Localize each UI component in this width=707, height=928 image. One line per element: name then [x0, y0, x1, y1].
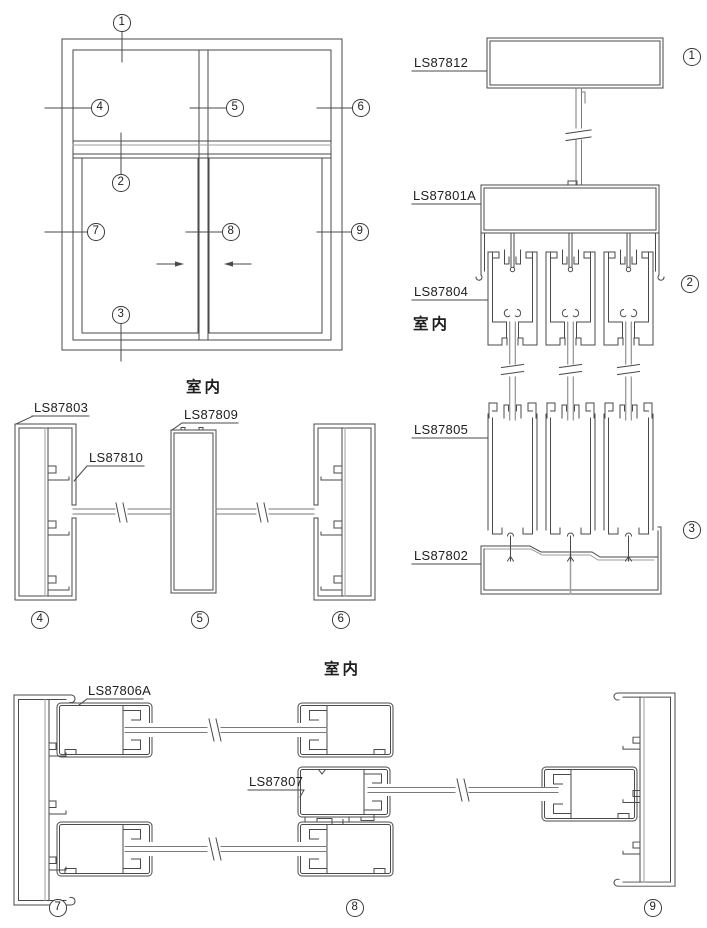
glass-lines-bottom — [125, 719, 558, 860]
elevation-linework — [45, 32, 352, 362]
section-marker-8-detail: 8 — [346, 899, 364, 917]
section-marker-8-elevation: 8 — [222, 223, 240, 241]
part-label-ls87802: LS87802 — [414, 549, 468, 563]
section-marker-6-elevation: 6 — [352, 99, 370, 117]
section-marker-4-elevation: 4 — [91, 99, 109, 117]
section-marker-1-detail: 1 — [683, 48, 701, 66]
profile-jamb-right-section9 — [614, 693, 675, 886]
profile-jamb-right-section6 — [314, 424, 375, 600]
section-marker-3-elevation: 3 — [112, 306, 130, 324]
part-label-ls87804: LS87804 — [414, 285, 468, 299]
profile-ls87809-mullion — [171, 423, 238, 593]
part-label-ls87801a: LS87801A — [413, 189, 476, 203]
part-label-ls87809: LS87809 — [184, 408, 238, 422]
interior-label-right-section: 室内 — [413, 316, 450, 333]
section-marker-6-detail: 6 — [332, 611, 350, 629]
interior-label-mid-section: 室内 — [186, 379, 223, 396]
part-label-ls87812: LS87812 — [414, 56, 468, 70]
section-marker-4-detail: 4 — [31, 611, 49, 629]
section-marker-9-elevation: 9 — [351, 223, 369, 241]
part-label-ls87810: LS87810 — [89, 451, 143, 465]
section-marker-7-elevation: 7 — [87, 223, 105, 241]
part-label-ls87803: LS87803 — [34, 401, 88, 415]
section-marker-3-detail: 3 — [683, 521, 701, 539]
section-marker-5-elevation: 5 — [226, 99, 244, 117]
section-marker-9-detail: 9 — [644, 899, 662, 917]
section-marker-5-detail: 5 — [191, 611, 209, 629]
glass-lines-mid — [73, 503, 314, 522]
part-label-ls87807: LS87807 — [249, 775, 303, 789]
glass-lines-section2-3 — [502, 322, 640, 420]
section-marker-7-detail: 7 — [49, 899, 67, 917]
section-marker-2-detail: 2 — [681, 275, 699, 293]
part-label-ls87805: LS87805 — [414, 423, 468, 437]
interior-label-bottom-section: 室内 — [324, 661, 361, 678]
window-detail-drawing: LS87812 LS87801A LS87804 室内 LS87805 LS87… — [0, 0, 707, 928]
glass-line-section1 — [566, 88, 591, 185]
section-marker-1-elevation: 1 — [113, 14, 131, 32]
section-marker-2-elevation: 2 — [112, 174, 130, 192]
part-label-ls87806a: LS87806A — [88, 684, 151, 698]
profile-ls87803-jamb-left — [15, 416, 144, 600]
